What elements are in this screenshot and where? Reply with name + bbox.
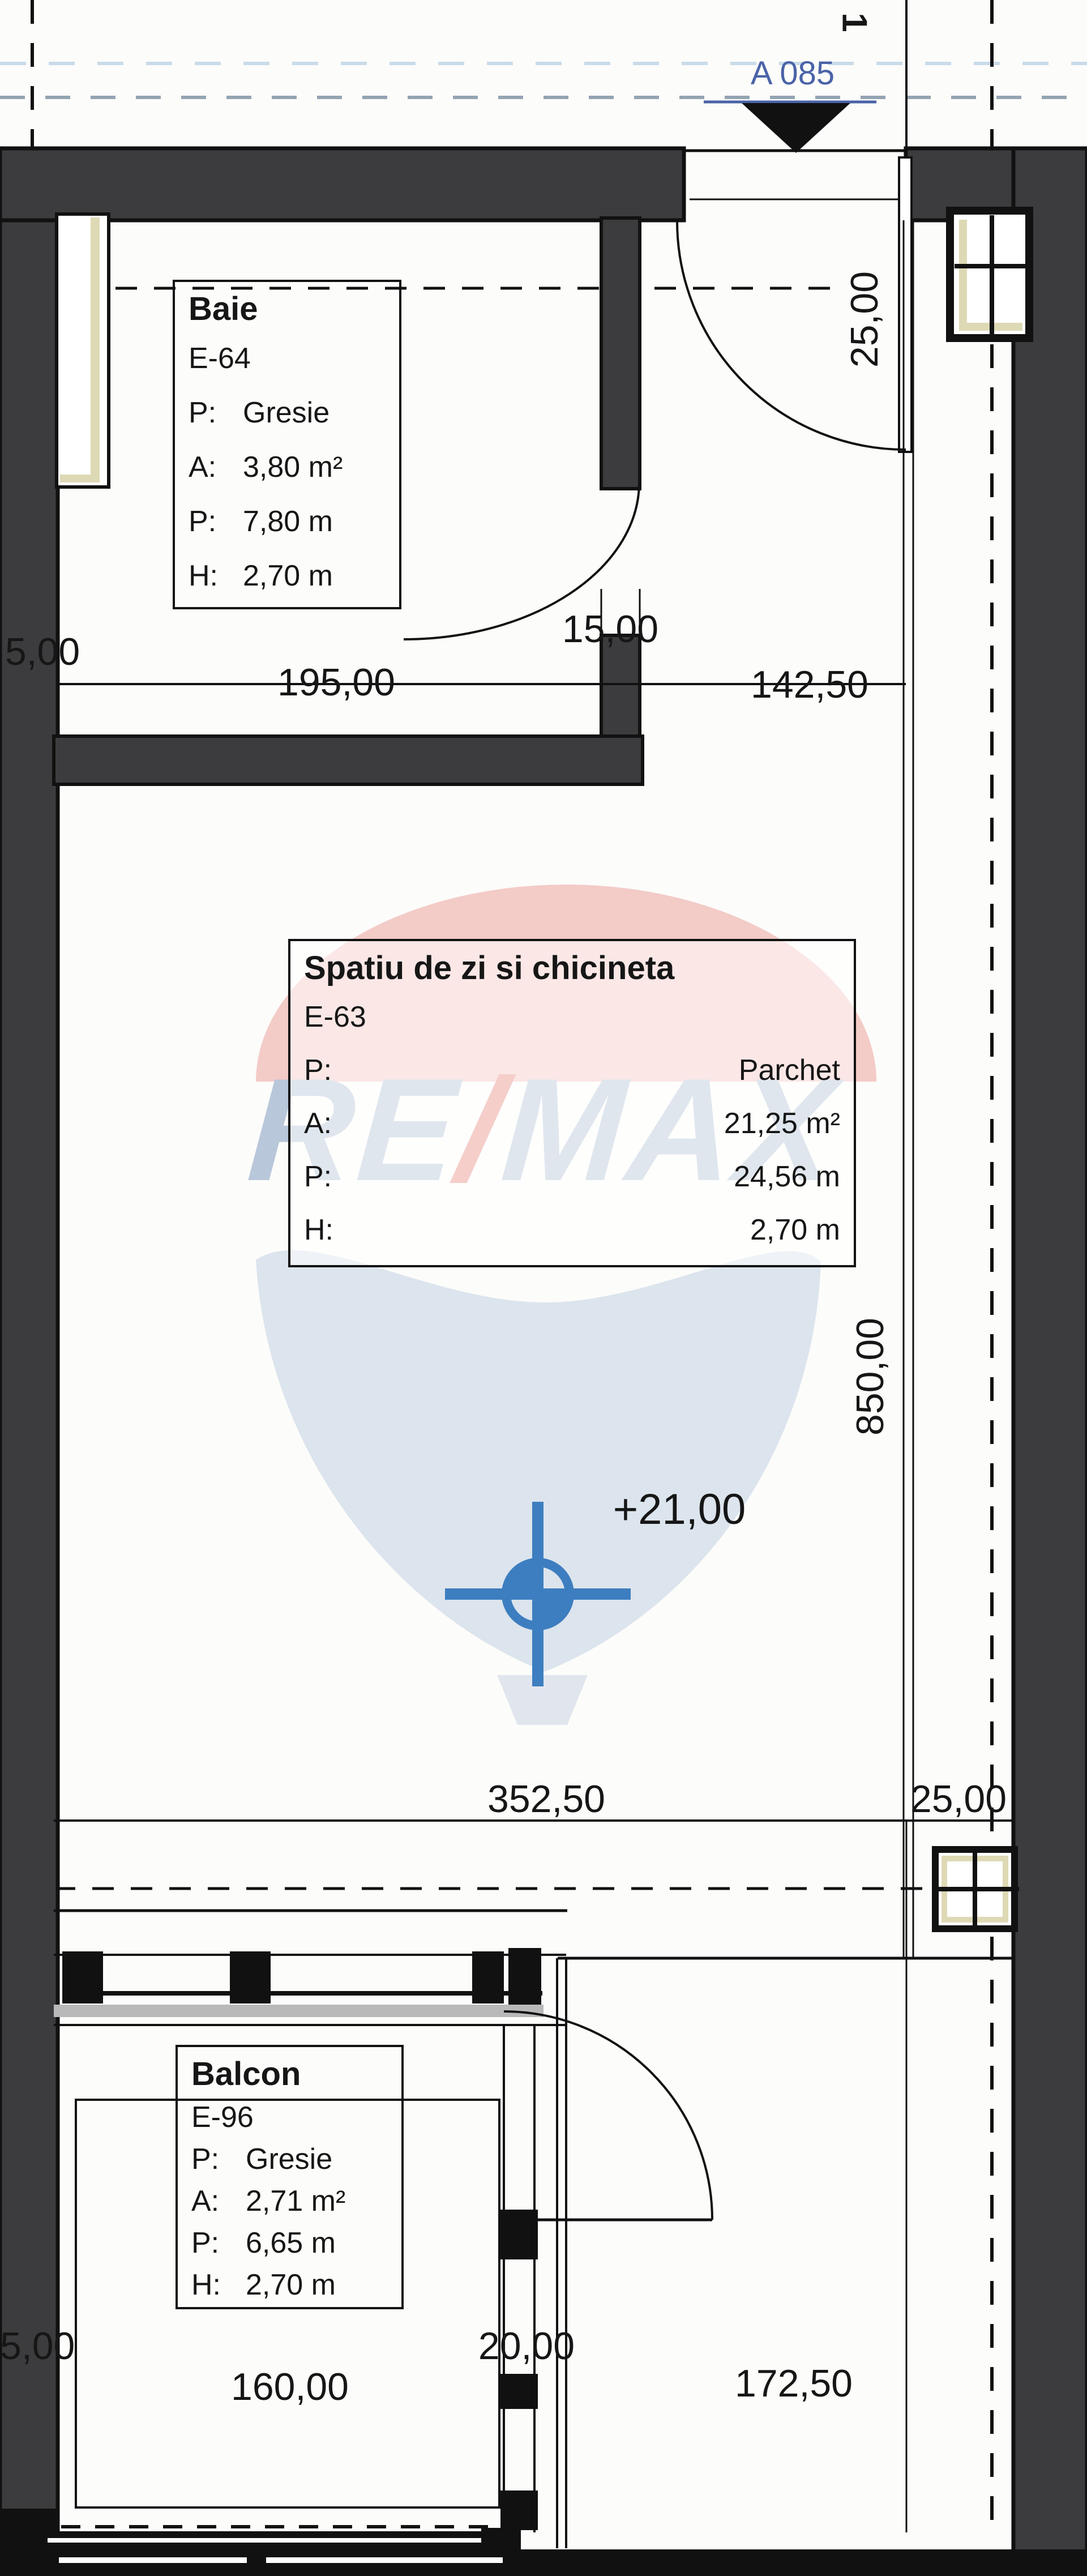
living-title: Spatiu de zi si chicineta — [304, 949, 840, 987]
dim-352-50: 352,50 — [461, 1777, 631, 1821]
left-niche-frame-tan-vertical — [91, 217, 100, 478]
living-code: E-63 — [304, 990, 840, 1044]
section-triangle-marker — [742, 103, 850, 153]
balcony-glazing-gray-band — [54, 2005, 543, 2017]
dim-142-50: 142,50 — [725, 663, 895, 707]
wall-left — [0, 148, 58, 2534]
dim-172-50: 172,50 — [709, 2361, 879, 2406]
dim-160: 160,00 — [205, 2365, 375, 2409]
balcony-bottom-block-left — [8, 2528, 48, 2553]
dim-5-top: 5,00 — [0, 630, 85, 674]
balcon-info-box: Balcon E-96 P:Gresie A:2,71 m² P:6,65 m … — [176, 2045, 404, 2309]
balcon-title: Balcon — [191, 2055, 388, 2093]
baie-row-value: 2,70 m — [243, 549, 333, 603]
living-row-value: 21,25 m² — [724, 1097, 840, 1150]
section-label: A 085 — [708, 54, 878, 92]
baie-row-label: P: — [189, 386, 243, 440]
dim-25-mid: 25,00 — [888, 1777, 1029, 1821]
wall-right — [1013, 148, 1087, 2576]
grid-axis-label: 1 — [834, 12, 875, 32]
wall-baie-south — [54, 736, 643, 784]
balcon-row-value: 2,71 m² — [246, 2180, 345, 2222]
baie-title: Baie — [189, 290, 386, 328]
balcon-row-label: H: — [191, 2264, 246, 2306]
living-row-value: 2,70 m — [750, 1203, 840, 1257]
living-row-value: Parchet — [739, 1044, 840, 1097]
level-marker-value: +21,00 — [577, 1485, 781, 1534]
balcony-mullion-2 — [230, 1951, 271, 2003]
balcon-row-value: 6,65 m — [246, 2222, 336, 2264]
balcony-mullion-3 — [472, 1951, 504, 2003]
living-row-label: A: — [304, 1097, 358, 1150]
balcony-right-mullion-3 — [500, 2490, 538, 2530]
shaft-window-top — [950, 211, 1029, 338]
baie-row-value: 3,80 m² — [243, 440, 343, 494]
bottom-bar-slit-1 — [59, 2557, 247, 2563]
balcony-right-mullion-2 — [500, 2374, 538, 2409]
balcony-bottom-block-right — [481, 2528, 521, 2553]
balcony-bottom-glazing-slit — [14, 2538, 515, 2543]
left-wall-niche — [57, 214, 109, 487]
dim-5-bottom: 5,00 — [0, 2324, 71, 2368]
dim-195: 195,00 — [251, 660, 421, 704]
baie-row-label: H: — [189, 549, 243, 603]
dim-20: 20,00 — [456, 2324, 597, 2368]
baie-row-label: A: — [189, 440, 243, 494]
balcony-right-mullion-1 — [500, 2210, 538, 2259]
living-info-box: Spatiu de zi si chicineta E-63 P:Parchet… — [288, 939, 856, 1267]
baie-row-label: P: — [189, 494, 243, 549]
balcony-mullion-1 — [62, 1951, 103, 2003]
baie-code: E-64 — [189, 331, 386, 386]
balcon-row-label: P: — [191, 2222, 246, 2264]
floor-plan-canvas: RE/MAX A 085 1 Baie E-64 P:Gresie A:3,80… — [0, 0, 1087, 2576]
living-row-value: 24,56 m — [734, 1150, 840, 1203]
dim-15: 15,00 — [540, 607, 681, 651]
shaft-window-bottom — [932, 1849, 1019, 1929]
plan-drawing — [0, 0, 1087, 2576]
balcon-row-value: 2,70 m — [246, 2264, 336, 2306]
baie-info-box: Baie E-64 P:Gresie A:3,80 m² P:7,80 m H:… — [173, 280, 401, 609]
entrance-door-leaf — [899, 157, 911, 452]
balcon-row-label: P: — [191, 2138, 246, 2180]
wall-top-left — [0, 148, 684, 220]
balcony-door-post — [508, 1948, 541, 2010]
balcon-row-value: Gresie — [246, 2138, 332, 2180]
dim-850-rotated: 850,00 — [848, 1292, 892, 1462]
wall-baie-right-upper — [601, 218, 640, 489]
living-row-label: H: — [304, 1203, 358, 1257]
bottom-bar-slit-2 — [266, 2557, 503, 2563]
living-row-label: P: — [304, 1044, 358, 1097]
living-row-label: P: — [304, 1150, 358, 1203]
balcon-row-label: A: — [191, 2180, 246, 2222]
baie-row-value: Gresie — [243, 386, 329, 440]
balcon-code: E-96 — [191, 2096, 388, 2138]
dim-25-top-rotated: 25,00 — [842, 249, 887, 390]
left-niche-frame-tan-bottom — [60, 475, 100, 482]
baie-row-value: 7,80 m — [243, 494, 333, 549]
